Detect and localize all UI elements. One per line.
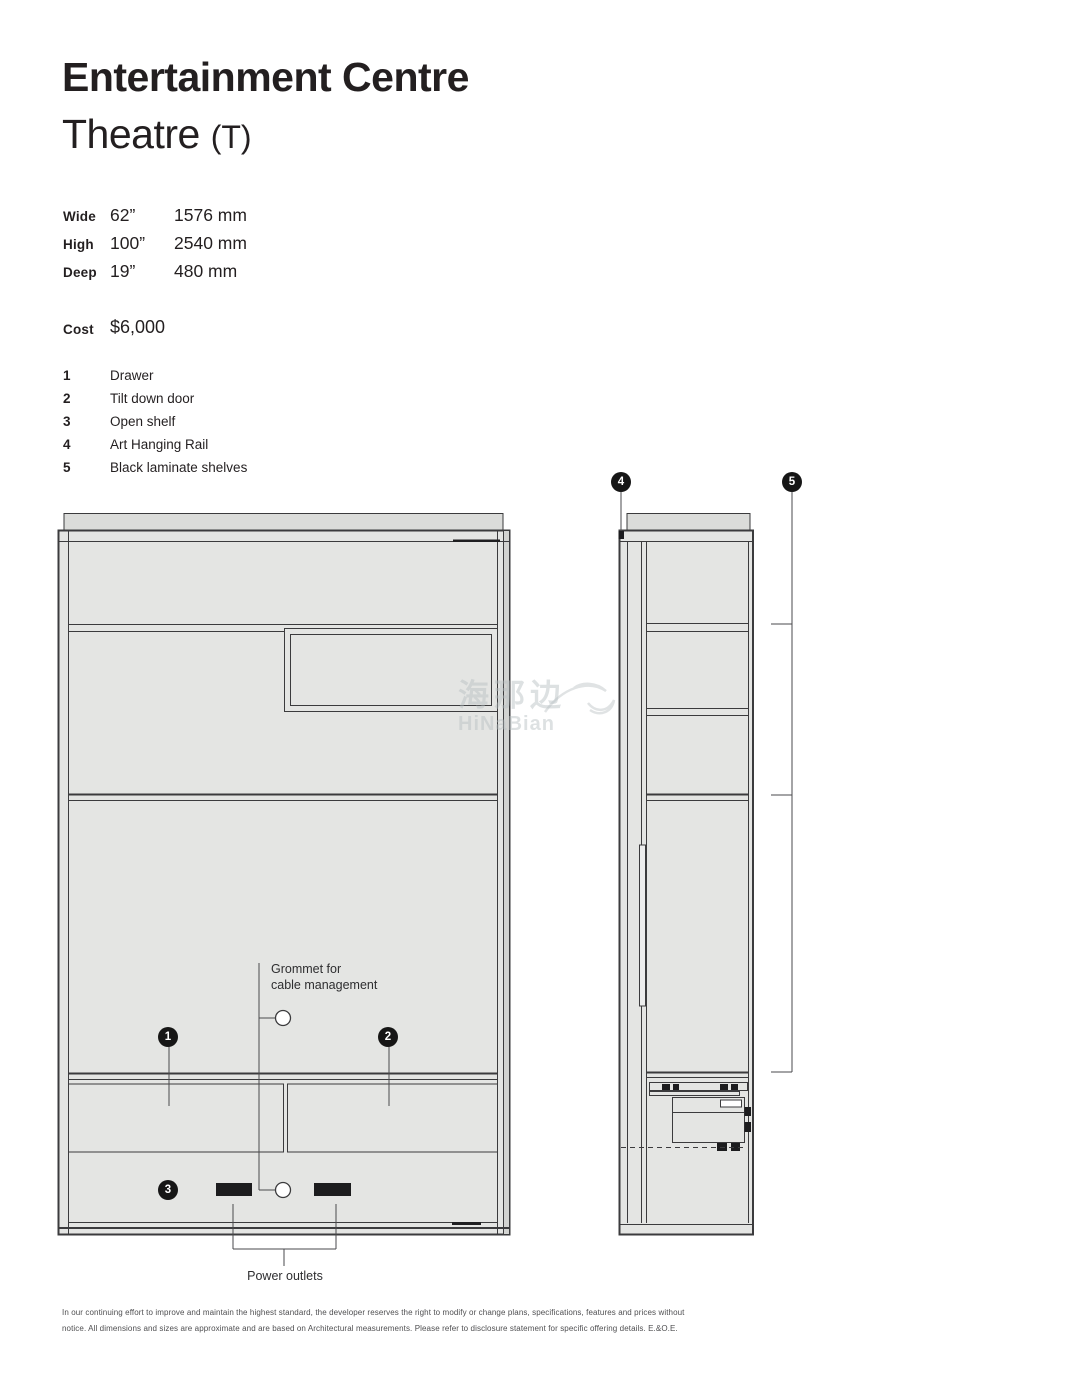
feature-number: 4 xyxy=(63,437,71,452)
leader-grommet xyxy=(259,963,275,1190)
feature-label: Drawer xyxy=(110,368,154,383)
grommet-label: Grommet for cable management xyxy=(271,961,377,993)
footer-line2: notice. All dimensions and sizes are app… xyxy=(62,1321,762,1337)
spec-row-deep: Deep 19” 480 mm xyxy=(62,261,422,283)
grommets xyxy=(276,1011,291,1198)
leader-power-outlets xyxy=(233,1204,336,1266)
spec-imperial-value: 19” xyxy=(110,261,135,282)
spec-metric-value: 2540 mm xyxy=(174,233,247,254)
cost-value: $6,000 xyxy=(110,317,165,338)
grommet-label-line2: cable management xyxy=(271,977,377,993)
feature-number: 3 xyxy=(63,414,71,429)
grommet-hole-lower xyxy=(276,1183,291,1198)
front-open-shelf-niche xyxy=(285,629,498,712)
feature-label: Open shelf xyxy=(110,414,175,429)
feature-number: 1 xyxy=(63,368,71,383)
side-view xyxy=(619,514,754,1235)
watermark-cn: 海那边 xyxy=(458,670,566,715)
page-subtitle: Theatre (T) xyxy=(62,111,252,158)
feature-row: 1 Drawer xyxy=(62,368,422,388)
spec-imperial-value: 100” xyxy=(110,233,145,254)
grommet-label-line1: Grommet for xyxy=(271,961,377,977)
page-title: Entertainment Centre xyxy=(62,54,469,101)
footer-line1: In our continuing effort to improve and … xyxy=(62,1305,762,1321)
feature-number: 5 xyxy=(63,460,71,475)
art-hanging-rail-mark xyxy=(619,531,625,539)
watermark: 海那边 HiNaBian xyxy=(458,670,566,736)
front-view xyxy=(59,514,510,1235)
callout-badge-1: 1 xyxy=(158,1027,178,1047)
side-body xyxy=(620,531,754,1235)
spec-imperial-value: 62” xyxy=(110,205,135,226)
spec-row-high: High 100” 2540 mm xyxy=(62,233,422,255)
side-shelves xyxy=(647,624,749,801)
feature-label: Black laminate shelves xyxy=(110,460,247,475)
front-body xyxy=(59,531,510,1235)
subtitle-code: (T) xyxy=(211,119,252,155)
power-outlet-right xyxy=(314,1183,351,1196)
spec-metric-value: 480 mm xyxy=(174,261,237,282)
side-top-cap xyxy=(627,514,750,531)
feature-label: Tilt down door xyxy=(110,391,194,406)
front-drawer-left xyxy=(69,1084,284,1152)
callout-badge-5: 5 xyxy=(782,472,802,492)
power-outlet-left xyxy=(216,1183,252,1196)
front-drawer-right xyxy=(288,1084,498,1152)
side-drawer-assembly xyxy=(621,1083,751,1152)
feature-row: 2 Tilt down door xyxy=(62,391,422,411)
leader-callout-5 xyxy=(771,492,792,1072)
callout-badge-3: 3 xyxy=(158,1180,178,1200)
spec-label: High xyxy=(63,237,94,252)
spec-row-wide: Wide 62” 1576 mm xyxy=(62,205,422,227)
feature-row: 4 Art Hanging Rail xyxy=(62,437,422,457)
side-door-handle xyxy=(640,845,646,1006)
callout-badge-4: 4 xyxy=(611,472,631,492)
subtitle-text: Theatre xyxy=(62,111,200,157)
spec-label: Deep xyxy=(63,265,97,280)
grommet-hole-upper xyxy=(276,1011,291,1026)
spec-metric-value: 1576 mm xyxy=(174,205,247,226)
feature-label: Art Hanging Rail xyxy=(110,437,208,452)
callout-badge-2: 2 xyxy=(378,1027,398,1047)
watermark-en: HiNaBian xyxy=(458,713,566,736)
cost-label: Cost xyxy=(63,322,94,337)
footer-disclaimer: In our continuing effort to improve and … xyxy=(62,1305,762,1336)
front-right-shade xyxy=(504,531,510,1234)
feature-row: 5 Black laminate shelves xyxy=(62,460,422,480)
feature-row: 3 Open shelf xyxy=(62,414,422,434)
leader-lines xyxy=(169,492,792,1266)
power-outlets-label: Power outlets xyxy=(230,1269,340,1283)
spec-sheet-page: Entertainment Centre Theatre (T) Wide 62… xyxy=(0,0,1080,1398)
feature-number: 2 xyxy=(63,391,71,406)
spec-label: Wide xyxy=(63,209,96,224)
front-top-cap xyxy=(64,514,503,531)
watermark-swirl xyxy=(545,684,614,713)
